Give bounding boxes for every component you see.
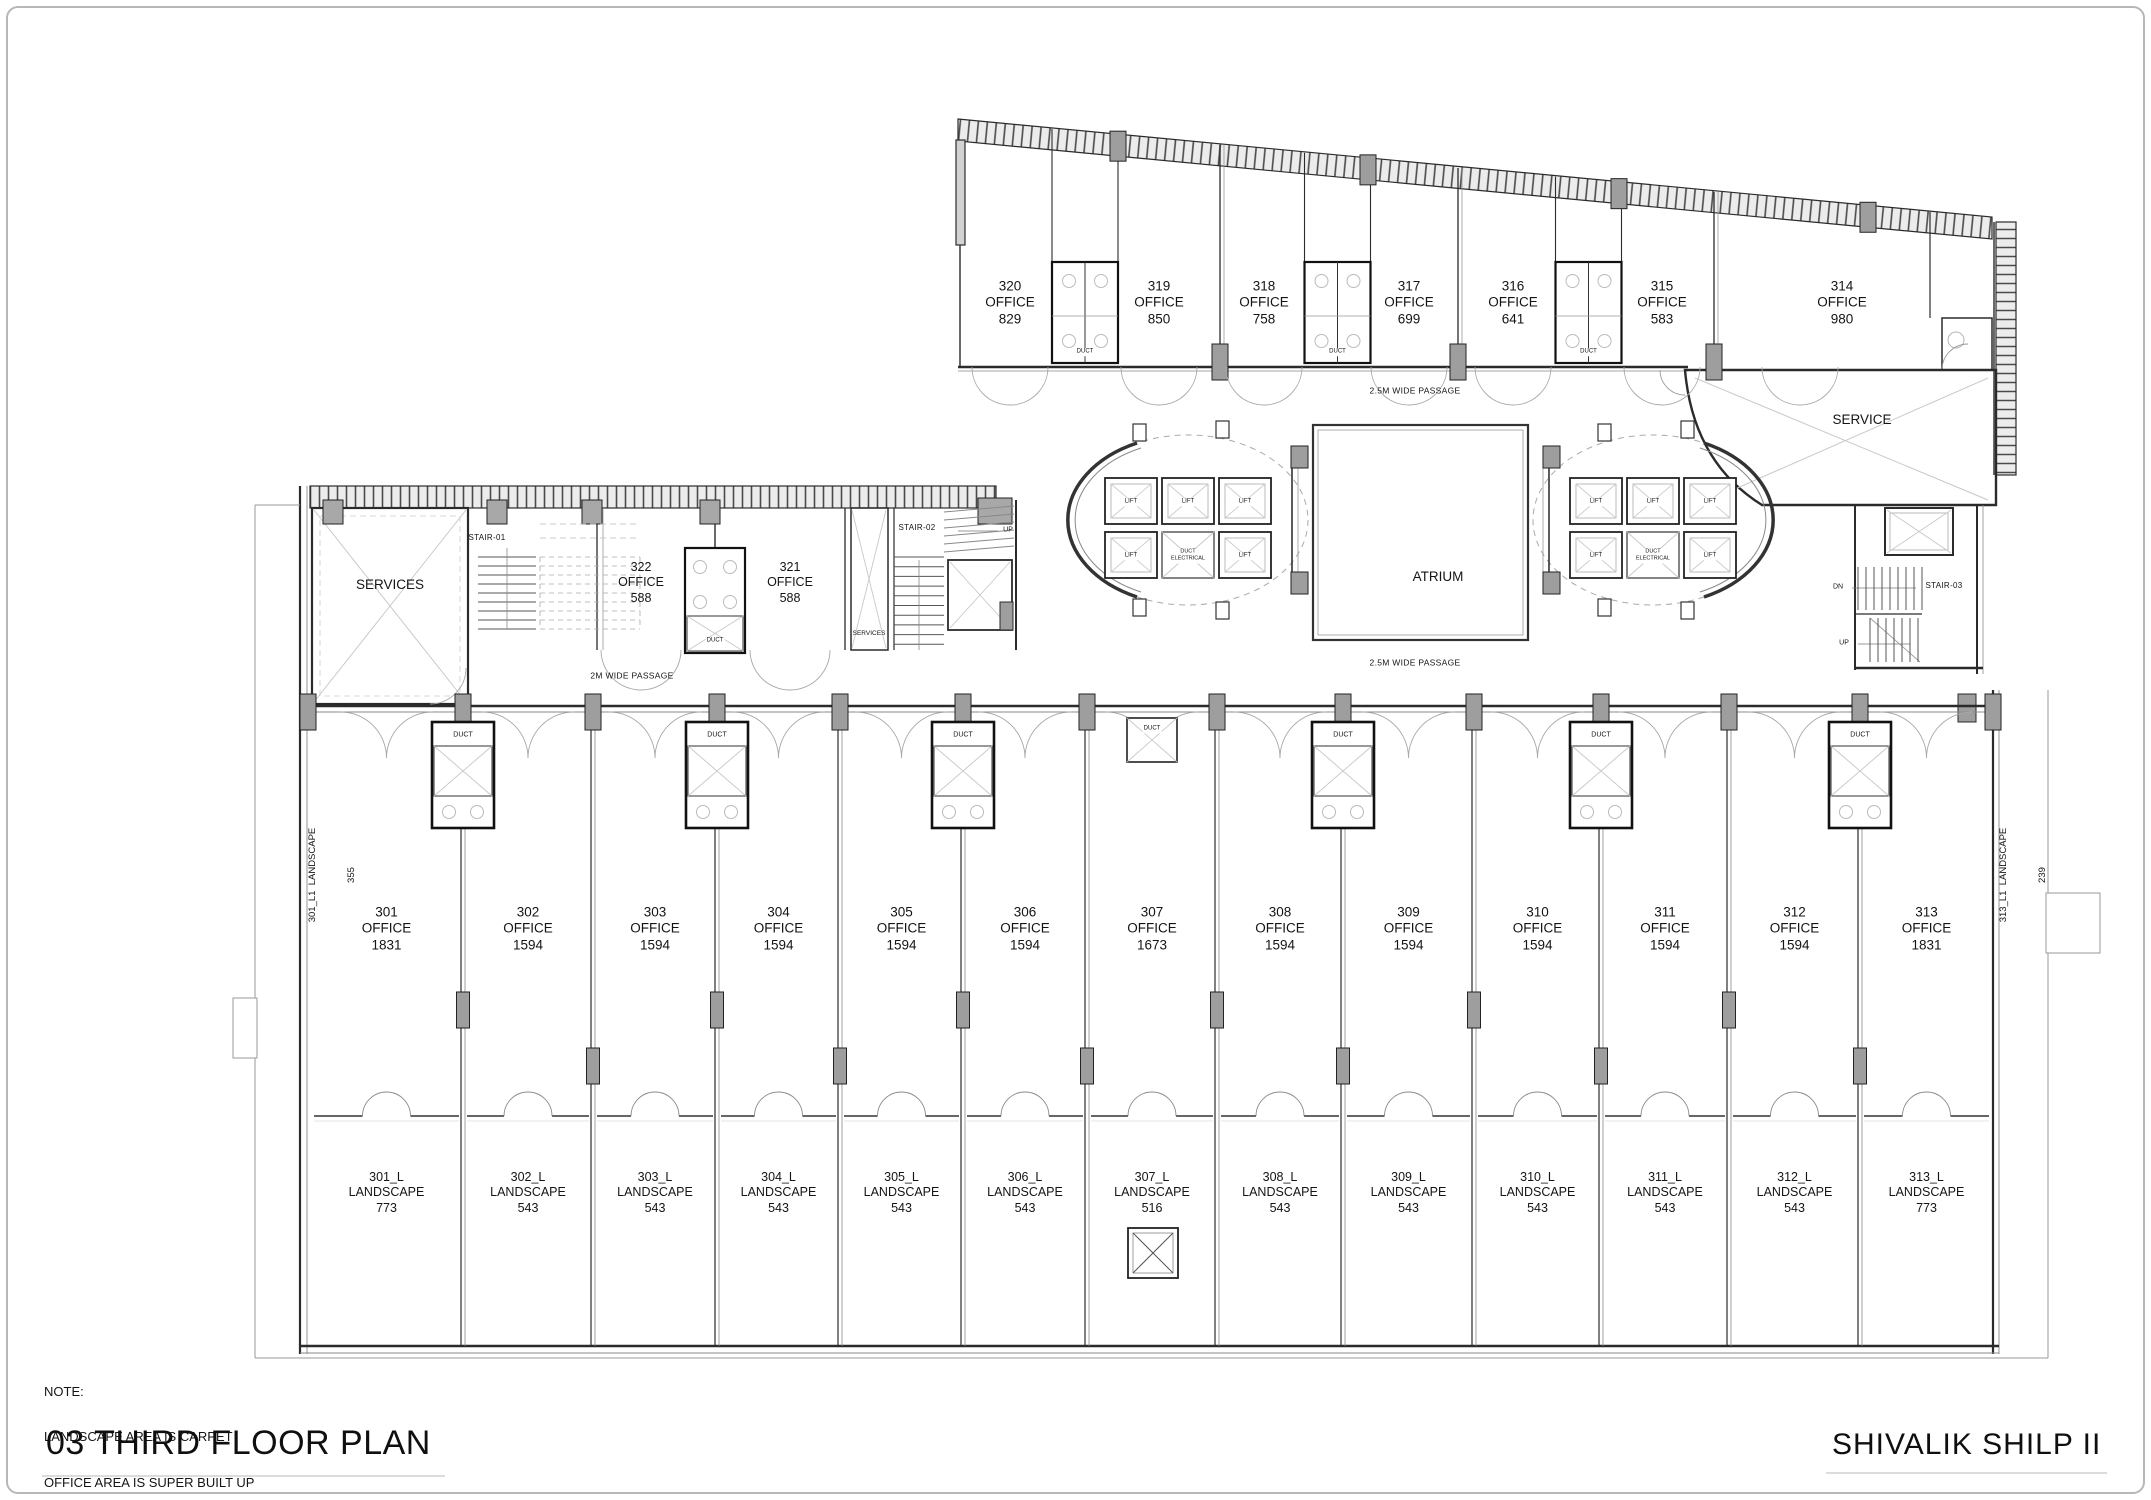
landscape-label-312L: 312_LLANDSCAPE543 — [1757, 1170, 1833, 1216]
stair-02-label: STAIR-02 — [899, 523, 936, 533]
top-office-label-318-line: OFFICE — [1239, 295, 1289, 311]
service-room-label: SERVICE — [1832, 412, 1891, 428]
duct-label-line: DUCT — [707, 637, 724, 645]
stair-03-label: STAIR-03 — [1926, 581, 1963, 591]
duct-label: DUCT — [1332, 732, 1353, 741]
duct-label: DUCT — [1579, 348, 1598, 356]
floor-plan-drawing — [0, 0, 2151, 1500]
bottom-office-label-303-line: 1594 — [630, 937, 680, 953]
bottom-office-label-310-line: 1594 — [1513, 937, 1563, 953]
mid-office-label-321-line: 588 — [767, 591, 813, 606]
bottom-office-label-305-line: 305 — [877, 904, 927, 920]
bottom-office-label-310-line: 310 — [1513, 904, 1563, 920]
landscape-label-309L: 309_LLANDSCAPE543 — [1371, 1170, 1447, 1216]
top-office-label-320-line: OFFICE — [985, 295, 1035, 311]
bottom-office-label-307-line: 1673 — [1127, 937, 1177, 953]
atrium-label: ATRIUM — [1413, 569, 1464, 585]
landscape-label-309L-line: LANDSCAPE — [1371, 1185, 1447, 1200]
landscape-label-313L-line: 313_L — [1889, 1170, 1965, 1185]
bottom-office-label-301-line: OFFICE — [362, 921, 412, 937]
bottom-office-label-305-line: OFFICE — [877, 921, 927, 937]
landscape-label-310L-line: 310_L — [1500, 1170, 1576, 1185]
bottom-office-label-313: 313OFFICE1831 — [1902, 904, 1952, 953]
duct-electrical-label-line: DUCT — [1171, 549, 1205, 556]
bottom-office-label-307: 307OFFICE1673 — [1127, 904, 1177, 953]
lift-label-line: LIFT — [1704, 552, 1716, 560]
duct-label-line: DUCT — [1591, 732, 1610, 741]
bottom-office-label-306-line: 1594 — [1000, 937, 1050, 953]
top-office-label-318-line: 758 — [1239, 311, 1289, 327]
duct-label: DUCT — [1590, 732, 1611, 741]
bottom-office-label-306: 306OFFICE1594 — [1000, 904, 1050, 953]
landscape-label-301L-line: 773 — [349, 1201, 425, 1216]
stair-03-up-label: UP — [1839, 640, 1849, 649]
duct-electrical-label-line: ELECTRICAL — [1636, 556, 1670, 563]
lift-label: LIFT — [1646, 498, 1660, 506]
landscape-label-307L-line: 307_L — [1114, 1170, 1190, 1185]
bottom-office-label-309-line: 1594 — [1384, 937, 1434, 953]
bottom-office-label-312-line: OFFICE — [1770, 921, 1820, 937]
landscape-label-305L-line: 305_L — [864, 1170, 940, 1185]
mid-office-label-322-line: 588 — [618, 591, 664, 606]
bottom-office-label-308-line: 308 — [1255, 904, 1305, 920]
landscape-label-302L: 302_LLANDSCAPE543 — [490, 1170, 566, 1216]
top-office-label-314: 314OFFICE980 — [1817, 278, 1867, 327]
duct-label-line: DUCT — [1850, 732, 1869, 741]
landscape-label-304L-line: LANDSCAPE — [741, 1185, 817, 1200]
bottom-office-label-304-line: 304 — [754, 904, 804, 920]
bottom-office-label-309-line: OFFICE — [1384, 921, 1434, 937]
landscape-label-312L-line: 312_L — [1757, 1170, 1833, 1185]
bottom-office-label-304: 304OFFICE1594 — [754, 904, 804, 953]
duct-label: DUCT — [452, 732, 473, 741]
bottom-office-label-303: 303OFFICE1594 — [630, 904, 680, 953]
landscape-label-305L-line: 543 — [864, 1201, 940, 1216]
top-office-label-317-line: 317 — [1384, 278, 1434, 294]
lift-label-line: LIFT — [1647, 498, 1659, 506]
landscape-label-301L: 301_LLANDSCAPE773 — [349, 1170, 425, 1216]
note-heading: NOTE: — [44, 1384, 254, 1399]
lift-label-line: LIFT — [1239, 498, 1251, 506]
top-office-label-315: 315OFFICE583 — [1637, 278, 1687, 327]
bottom-office-label-301-line: 301 — [362, 904, 412, 920]
landscape-label-303L-line: 303_L — [617, 1170, 693, 1185]
landscape-label-310L-line: 543 — [1500, 1201, 1576, 1216]
landscape-label-303L-line: 543 — [617, 1201, 693, 1216]
duct-label: DUCT — [1328, 348, 1347, 356]
top-office-label-316-line: 641 — [1488, 311, 1538, 327]
landscape-label-312L-line: LANDSCAPE — [1757, 1185, 1833, 1200]
landscape-label-308L-line: 308_L — [1242, 1170, 1318, 1185]
side-landscape-right-line2: 239 — [2036, 828, 2049, 923]
lift-label: LIFT — [1589, 552, 1603, 560]
landscape-label-308L-line: 543 — [1242, 1201, 1318, 1216]
project-title: SHIVALIK SHILP II — [1826, 1428, 2107, 1474]
landscape-label-306L-line: 306_L — [987, 1170, 1063, 1185]
mid-office-label-322-line: 322 — [618, 560, 664, 575]
bottom-office-label-304-line: OFFICE — [754, 921, 804, 937]
bottom-office-label-307-line: 307 — [1127, 904, 1177, 920]
stair-03-linework — [1852, 505, 2100, 1358]
stair-02-up-label: UP — [1003, 527, 1013, 536]
bottom-office-label-302-line: 302 — [503, 904, 553, 920]
landscape-label-305L-line: LANDSCAPE — [864, 1185, 940, 1200]
top-office-label-314-line: 980 — [1817, 311, 1867, 327]
landscape-label-311L-line: 543 — [1627, 1201, 1703, 1216]
lift-label: LIFT — [1703, 552, 1717, 560]
top-office-label-314-line: 314 — [1817, 278, 1867, 294]
passage-label-top: 2.5M WIDE PASSAGE — [1370, 386, 1461, 397]
services-small-label: SERVICES — [853, 630, 886, 638]
bottom-office-label-304-line: 1594 — [754, 937, 804, 953]
bottom-office-label-309: 309OFFICE1594 — [1384, 904, 1434, 953]
landscape-label-311L-line: 311_L — [1627, 1170, 1703, 1185]
mid-office-label-322-line: OFFICE — [618, 575, 664, 590]
landscape-label-303L-line: LANDSCAPE — [617, 1185, 693, 1200]
landscape-label-302L-line: 302_L — [490, 1170, 566, 1185]
lift-label: LIFT — [1703, 498, 1717, 506]
top-office-label-317-line: OFFICE — [1384, 295, 1434, 311]
lift-label-line: LIFT — [1125, 498, 1137, 506]
duct-label: DUCT — [706, 732, 727, 741]
landscape-label-306L-line: LANDSCAPE — [987, 1185, 1063, 1200]
bottom-office-label-311-line: 1594 — [1640, 937, 1690, 953]
top-office-label-317: 317OFFICE699 — [1384, 278, 1434, 327]
duct-label-line: DUCT — [1580, 348, 1597, 356]
bottom-office-label-311-line: 311 — [1640, 904, 1690, 920]
bottom-office-label-303-line: OFFICE — [630, 921, 680, 937]
bottom-office-label-302: 302OFFICE1594 — [503, 904, 553, 953]
bottom-office-label-303-line: 303 — [630, 904, 680, 920]
passage-label-middle: 2.5M WIDE PASSAGE — [1370, 658, 1461, 669]
duct-label: DUCT — [706, 637, 725, 645]
side-landscape-left-line1: 301_L1 LANDSCAPE — [305, 828, 318, 923]
bottom-office-label-302-line: 1594 — [503, 937, 553, 953]
bottom-office-label-301-line: 1831 — [362, 937, 412, 953]
duct-label-line: DUCT — [1333, 732, 1352, 741]
top-office-label-315-line: 583 — [1637, 311, 1687, 327]
bottom-office-label-305: 305OFFICE1594 — [877, 904, 927, 953]
landscape-label-309L-line: 543 — [1371, 1201, 1447, 1216]
landscape-label-307L: 307_LLANDSCAPE516 — [1114, 1170, 1190, 1216]
landscape-label-303L: 303_LLANDSCAPE543 — [617, 1170, 693, 1216]
bottom-office-label-311-line: OFFICE — [1640, 921, 1690, 937]
lift-label: LIFT — [1238, 498, 1252, 506]
mid-office-label-321-line: OFFICE — [767, 575, 813, 590]
bottom-office-label-301: 301OFFICE1831 — [362, 904, 412, 953]
bottom-office-label-312-line: 1594 — [1770, 937, 1820, 953]
landscape-label-306L-line: 543 — [987, 1201, 1063, 1216]
duct-electrical-label: DUCTELECTRICAL — [1635, 549, 1671, 564]
top-office-label-316-line: OFFICE — [1488, 295, 1538, 311]
top-office-label-315-line: 315 — [1637, 278, 1687, 294]
landscape-label-313L: 313_LLANDSCAPE773 — [1889, 1170, 1965, 1216]
plan-title: 03 THIRD FLOOR PLAN — [42, 1424, 445, 1477]
bottom-office-label-313-line: 313 — [1902, 904, 1952, 920]
bottom-office-label-308-line: OFFICE — [1255, 921, 1305, 937]
landscape-label-304L: 304_LLANDSCAPE543 — [741, 1170, 817, 1216]
lift-label-line: LIFT — [1239, 552, 1251, 560]
landscape-label-307L-line: 516 — [1114, 1201, 1190, 1216]
passage-label-bottom: 2M WIDE PASSAGE — [590, 671, 673, 682]
bottom-office-label-309-line: 309 — [1384, 904, 1434, 920]
duct-label-line: DUCT — [1077, 348, 1094, 356]
landscape-label-308L: 308_LLANDSCAPE543 — [1242, 1170, 1318, 1216]
side-landscape-left-line2: 355 — [345, 828, 358, 923]
landscape-label-309L-line: 309_L — [1371, 1170, 1447, 1185]
top-office-label-316: 316OFFICE641 — [1488, 278, 1538, 327]
side-landscape-right-label: 313_L1 LANDSCAPE 239 — [1970, 828, 2076, 923]
duct-electrical-label: DUCTELECTRICAL — [1170, 549, 1206, 564]
duct-label: DUCT — [952, 732, 973, 741]
stair-03-dn-label: DN — [1833, 584, 1843, 593]
lift-label-line: LIFT — [1182, 498, 1194, 506]
top-office-label-316-line: 316 — [1488, 278, 1538, 294]
stair-01-label: STAIR-01 — [469, 533, 506, 543]
duct-label-line: DUCT — [707, 732, 726, 741]
landscape-label-307L-line: LANDSCAPE — [1114, 1185, 1190, 1200]
top-office-label-314-line: OFFICE — [1817, 295, 1867, 311]
bottom-office-label-311: 311OFFICE1594 — [1640, 904, 1690, 953]
landscape-label-310L: 310_LLANDSCAPE543 — [1500, 1170, 1576, 1216]
bottom-office-label-307-line: OFFICE — [1127, 921, 1177, 937]
bottom-office-label-312: 312OFFICE1594 — [1770, 904, 1820, 953]
top-office-label-319-line: 850 — [1134, 311, 1184, 327]
bottom-office-label-310: 310OFFICE1594 — [1513, 904, 1563, 953]
top-office-label-315-line: OFFICE — [1637, 295, 1687, 311]
lift-label-line: LIFT — [1704, 498, 1716, 506]
lift-label: LIFT — [1124, 552, 1138, 560]
bottom-office-label-302-line: OFFICE — [503, 921, 553, 937]
landscape-label-311L: 311_LLANDSCAPE543 — [1627, 1170, 1703, 1216]
duct-label-line: DUCT — [453, 732, 472, 741]
top-office-label-318: 318OFFICE758 — [1239, 278, 1289, 327]
landscape-label-311L-line: LANDSCAPE — [1627, 1185, 1703, 1200]
bottom-office-label-313-line: 1831 — [1902, 937, 1952, 953]
floor-plan-page: 2.5M WIDE PASSAGE 2.5M WIDE PASSAGE 2M W… — [0, 0, 2151, 1500]
mid-office-label-321-line: 321 — [767, 560, 813, 575]
top-office-label-320-line: 829 — [985, 311, 1035, 327]
lift-label: LIFT — [1181, 498, 1195, 506]
lift-label: LIFT — [1124, 498, 1138, 506]
lift-label: LIFT — [1589, 498, 1603, 506]
landscape-label-302L-line: LANDSCAPE — [490, 1185, 566, 1200]
landscape-label-304L-line: 543 — [741, 1201, 817, 1216]
atrium-outline — [1313, 425, 1528, 640]
bottom-office-label-306-line: 306 — [1000, 904, 1050, 920]
bottom-office-label-305-line: 1594 — [877, 937, 927, 953]
landscape-label-313L-line: 773 — [1889, 1201, 1965, 1216]
bottom-office-label-310-line: OFFICE — [1513, 921, 1563, 937]
duct-label-line: DUCT — [1144, 725, 1161, 733]
duct-label-line: DUCT — [1329, 348, 1346, 356]
duct-label-line: DUCT — [953, 732, 972, 741]
bottom-office-label-312-line: 312 — [1770, 904, 1820, 920]
bottom-office-label-306-line: OFFICE — [1000, 921, 1050, 937]
landscape-label-302L-line: 543 — [490, 1201, 566, 1216]
top-office-label-319-line: OFFICE — [1134, 295, 1184, 311]
top-office-label-320-line: 320 — [985, 278, 1035, 294]
bottom-office-label-308: 308OFFICE1594 — [1255, 904, 1305, 953]
services-room-label: SERVICES — [356, 577, 424, 593]
landscape-label-305L: 305_LLANDSCAPE543 — [864, 1170, 940, 1216]
landscape-label-301L-line: 301_L — [349, 1170, 425, 1185]
landscape-label-304L-line: 304_L — [741, 1170, 817, 1185]
top-office-label-319: 319OFFICE850 — [1134, 278, 1184, 327]
bottom-office-label-313-line: OFFICE — [1902, 921, 1952, 937]
landscape-label-301L-line: LANDSCAPE — [349, 1185, 425, 1200]
duct-electrical-label-line: DUCT — [1636, 549, 1670, 556]
lift-label-line: LIFT — [1125, 552, 1137, 560]
mid-office-label-322: 322OFFICE588 — [618, 560, 664, 606]
landscape-label-310L-line: LANDSCAPE — [1500, 1185, 1576, 1200]
side-landscape-right-line1: 313_L1 LANDSCAPE — [1996, 828, 2009, 923]
duct-label: DUCT — [1076, 348, 1095, 356]
landscape-label-313L-line: LANDSCAPE — [1889, 1185, 1965, 1200]
top-office-label-319-line: 319 — [1134, 278, 1184, 294]
landscape-label-308L-line: LANDSCAPE — [1242, 1185, 1318, 1200]
top-office-label-318-line: 318 — [1239, 278, 1289, 294]
landscape-label-306L: 306_LLANDSCAPE543 — [987, 1170, 1063, 1216]
duct-label: DUCT — [1143, 725, 1162, 733]
top-office-label-317-line: 699 — [1384, 311, 1434, 327]
landscape-label-312L-line: 543 — [1757, 1201, 1833, 1216]
top-office-label-320: 320OFFICE829 — [985, 278, 1035, 327]
duct-label: DUCT — [1849, 732, 1870, 741]
bottom-office-label-308-line: 1594 — [1255, 937, 1305, 953]
mid-office-label-321: 321OFFICE588 — [767, 560, 813, 606]
duct-electrical-label-line: ELECTRICAL — [1171, 556, 1205, 563]
lift-label: LIFT — [1238, 552, 1252, 560]
lift-label-line: LIFT — [1590, 498, 1602, 506]
lift-label-line: LIFT — [1590, 552, 1602, 560]
